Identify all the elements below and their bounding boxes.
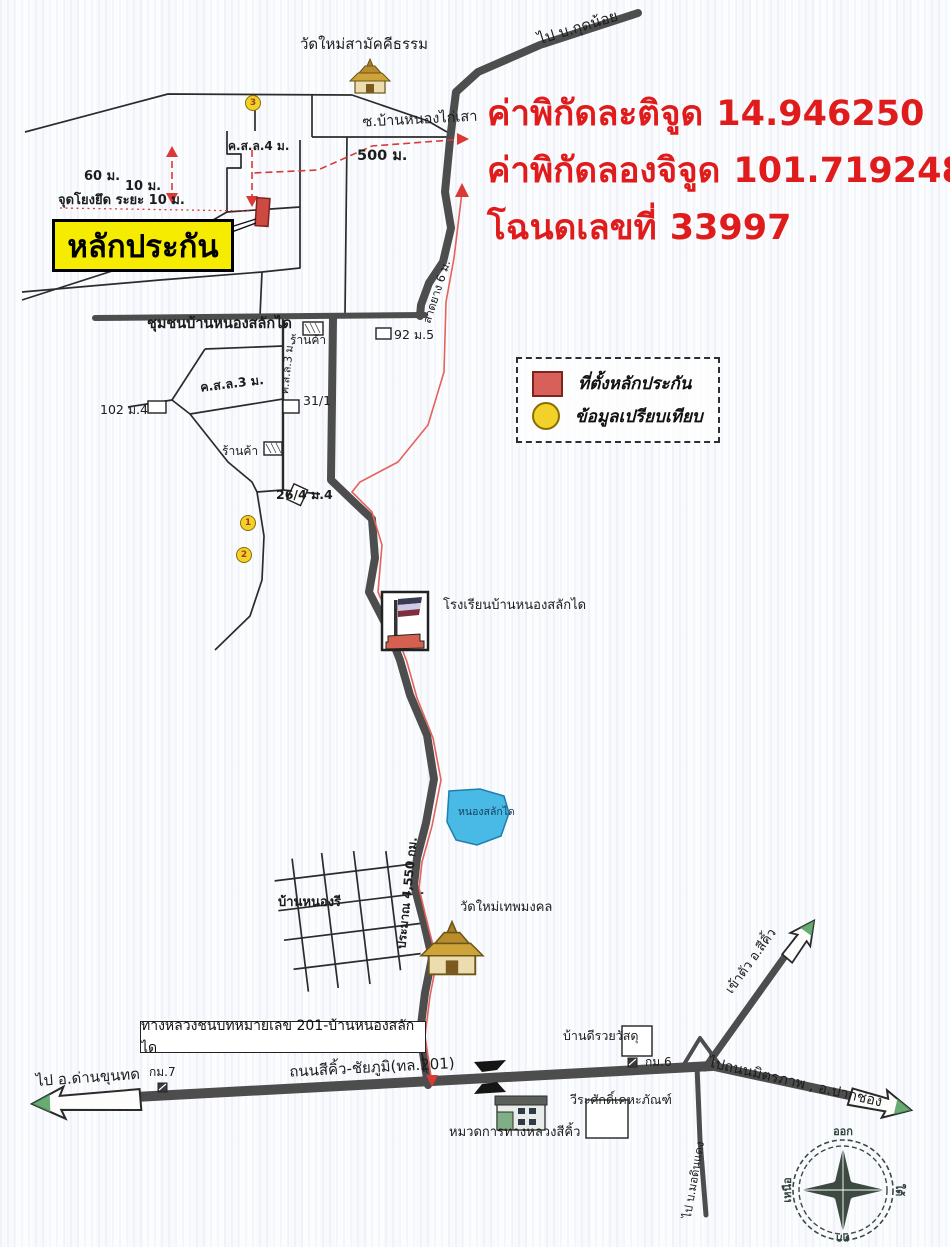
red-dashed-measures <box>172 139 465 203</box>
label-shop-bandee: บ้านดีรวยวัสดุ <box>563 1029 638 1043</box>
label-weerasak-kehaphan: วีระศักดิ์เคหะภัณฑ์ <box>570 1093 672 1107</box>
compass-rose-icon <box>793 1140 893 1240</box>
label-shop-south: ร้านค้า <box>222 445 258 459</box>
compass-label-north: เหนือ <box>778 1177 796 1202</box>
longitude-label: ค่าพิกัดลองจิจูด <box>487 143 720 200</box>
label-house-92-m5: 92 ม.5 <box>394 328 434 342</box>
longitude-line: ค่าพิกัดลองจิจูด 101.719248 <box>487 143 950 200</box>
red-square-icon <box>532 371 563 397</box>
label-house-31-1: 31/1 <box>303 394 331 408</box>
deed-value: 33997 <box>670 200 792 257</box>
legend-item-comparison: ข้อมูลเปรียบเทียบ <box>532 402 704 430</box>
label-distance-60m: 60 ม. <box>84 170 120 185</box>
longitude-value: 101.719248 <box>733 143 950 200</box>
compass-label-south: ใต้ <box>891 1184 909 1197</box>
label-house-26-4-m4: 26/4 ม.4 <box>276 488 333 502</box>
label-temple-north: วัดใหม่สามัคคีธรรม <box>300 36 428 53</box>
legend-box: ที่ตั้งหลักประกัน ข้อมูลเปรียบเทียบ <box>516 357 720 443</box>
comparison-point-2: 2 <box>236 547 252 563</box>
label-village-ban-nong-ri: บ้านหนองรี <box>278 896 341 911</box>
latitude-line: ค่าพิกัดละติจูด 14.946250 <box>487 86 950 143</box>
school-icon <box>382 592 428 650</box>
comparison-point-3: 3 <box>245 95 261 111</box>
yellow-circle-icon <box>532 402 560 430</box>
label-km6: กม.6 <box>645 1056 672 1070</box>
legend-item-label: ข้อมูลเปรียบเทียบ <box>575 403 703 430</box>
deed-label: โฉนดเลขที่ <box>487 200 657 257</box>
label-anchor-note: จุดโยงยึด ระยะ 10 ม. <box>58 194 185 209</box>
callout-rural-highway: ทางหลวงชนบทหมายเลข 201-บ้านหนองสลักได <box>140 1021 426 1053</box>
label-school: โรงเรียนบ้านหนองสลักได <box>443 599 586 614</box>
red-route-arrowhead-top <box>455 183 469 197</box>
compass-label-east: ออก <box>833 1122 853 1140</box>
legend-item-collateral: ที่ตั้งหลักประกัน <box>532 370 704 397</box>
coordinate-info-block: ค่าพิกัดละติจูด 14.946250 ค่าพิกัดลองจิจ… <box>487 86 950 257</box>
compass-label-west: ตก <box>836 1230 850 1247</box>
latitude-value: 14.946250 <box>716 86 924 143</box>
collateral-marker <box>255 198 270 227</box>
temple-icon-south <box>421 922 483 975</box>
red-dashed-arrowheads <box>166 133 469 207</box>
comparison-point-1: 1 <box>240 515 256 531</box>
label-distance-500m: 500 ม. <box>357 148 407 165</box>
survey-map-sheet: ค่าพิกัดละติจูด 14.946250 ค่าพิกัดลองจิจ… <box>0 0 950 1247</box>
legend-item-label: ที่ตั้งหลักประกัน <box>578 370 691 397</box>
collateral-label-box: หลักประกัน <box>52 219 234 272</box>
label-temple-south: วัดใหม่เทพมงคล <box>460 901 552 916</box>
deed-line: โฉนดเลขที่ 33997 <box>487 200 950 257</box>
label-road-csl-4m: ค.ส.ล.4 ม. <box>228 140 289 154</box>
label-pond: หนองสลักได <box>458 806 515 818</box>
label-community: ชุมชนบ้านหนองสลักได <box>147 316 292 333</box>
label-house-102-m4: 102 ม.4 <box>100 403 148 417</box>
label-km7: กม.7 <box>149 1066 176 1080</box>
label-highway-maintenance: หมวดการทางหลวงสีคิ้ว <box>449 1126 580 1141</box>
temple-icon-north <box>350 59 390 93</box>
latitude-label: ค่าพิกัดละติจูด <box>487 86 703 143</box>
